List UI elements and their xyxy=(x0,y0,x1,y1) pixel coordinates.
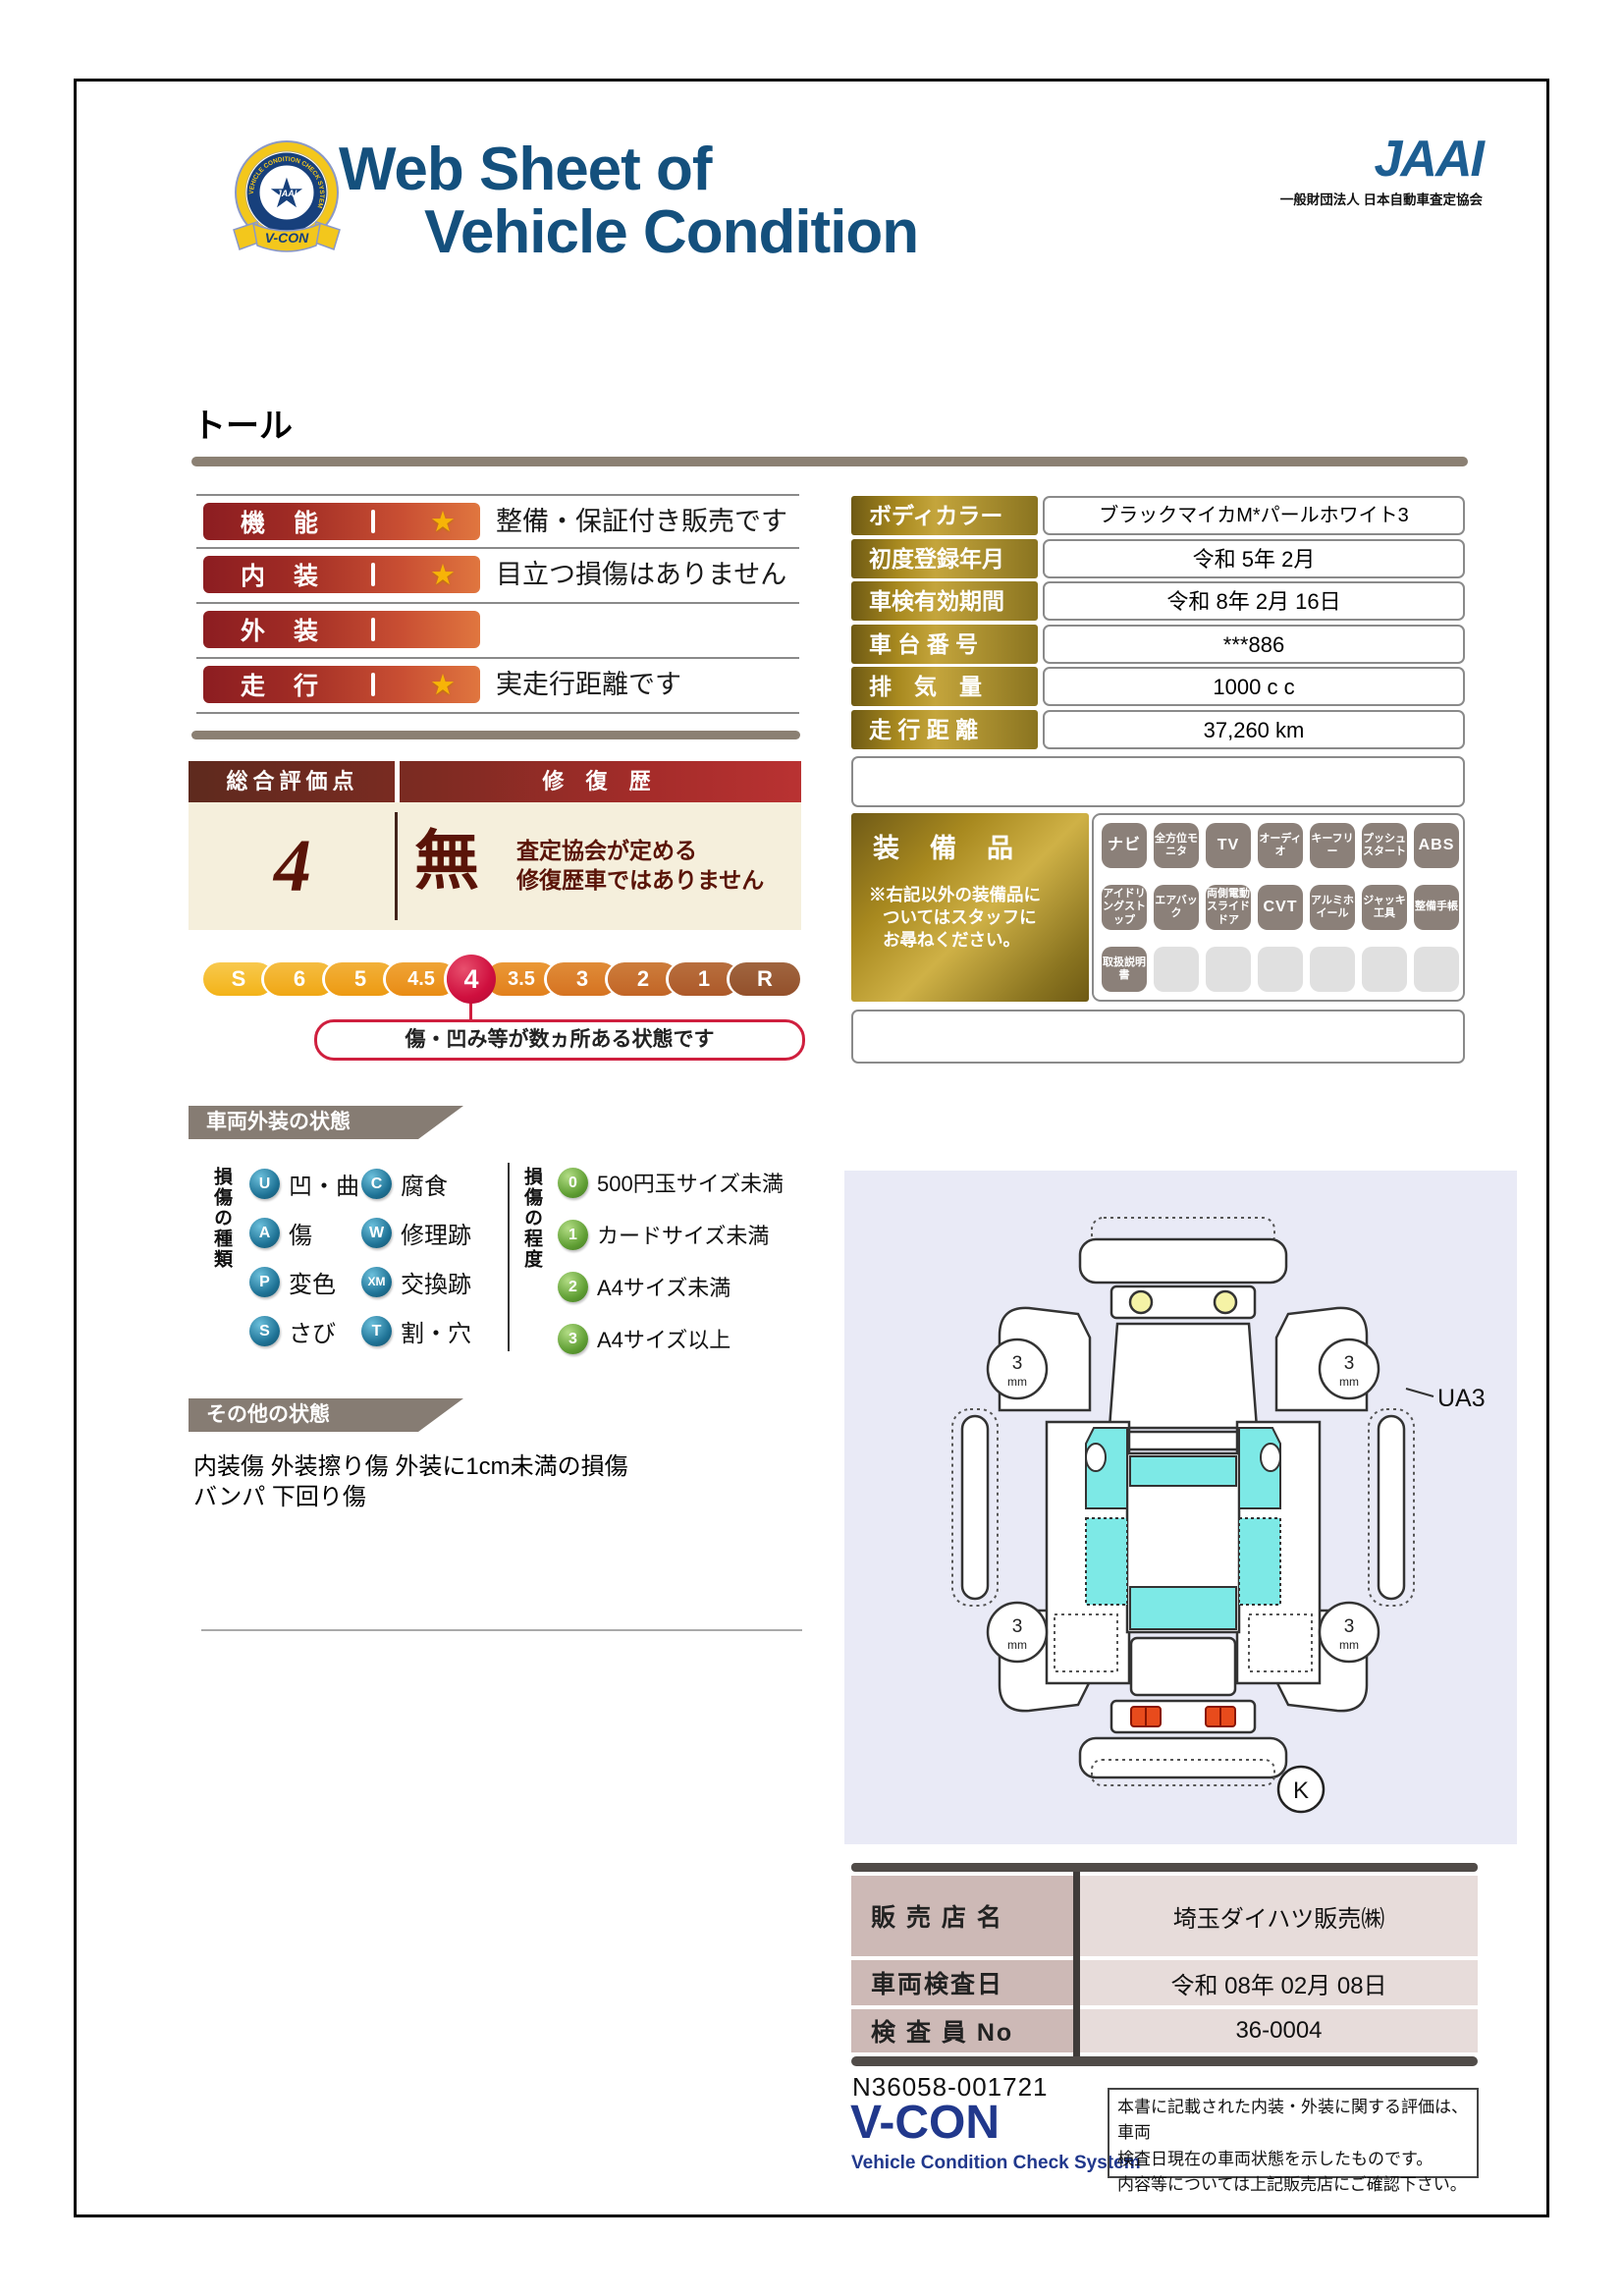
sheet-title-line2: Vehicle Condition xyxy=(424,202,918,263)
info-value-displacement: 1000 c c xyxy=(1043,667,1465,706)
section-exterior-title: 車両外装の状態 xyxy=(189,1106,463,1139)
degree-2-label: A4サイズ未満 xyxy=(597,1271,730,1302)
equipment-empty-slot xyxy=(1310,947,1355,992)
equipment-empty-slot xyxy=(1258,947,1303,992)
tire-fl-unit: mm xyxy=(1007,1375,1027,1389)
empty-note-box-2 xyxy=(851,1010,1465,1064)
dealer-value-inspection-date: 令和 08年 02月 08日 xyxy=(1080,1960,1478,2005)
vcon-badge-icon: VEHICLE CONDITION CHECK SYSTEM ★ JAAI V-… xyxy=(222,134,352,263)
damage-type-axis: 損傷の種類 xyxy=(208,1167,235,1324)
repair-note-line2: 修復歴車ではありません xyxy=(516,865,764,895)
dealer-value-shop: 埼玉ダイハツ販売㈱ xyxy=(1080,1876,1478,1956)
vehicle-name: トール xyxy=(192,399,293,447)
equipment-note-line2: ついてはスタッフに xyxy=(883,906,1037,929)
other-condition-line2: バンパ 下回り傷 xyxy=(193,1482,366,1512)
overall-score-header: 総合評価点 修 復 歴 xyxy=(189,761,801,802)
rating-divider xyxy=(371,510,375,533)
equipment-note-line3: お尋ねください。 xyxy=(883,929,1020,952)
badge-star-label: JAAI xyxy=(277,189,298,198)
legend-degree-3: 3 A4サイズ以上 xyxy=(558,1323,730,1354)
equipment-empty-slot xyxy=(1362,947,1407,992)
equipment-idling-stop: アイドリングストップ xyxy=(1102,885,1147,930)
repair-history-label: 修 復 歴 xyxy=(400,761,801,802)
equipment-airbag: エアバック xyxy=(1154,885,1199,930)
equipment-grid: ナビ 全方位モニタ TV オーディオ キーフリー プッシュスタート ABS アイ… xyxy=(1092,813,1465,1002)
legend-degree-0: 0 500円玉サイズ未満 xyxy=(558,1167,784,1198)
type-t-icon: T xyxy=(361,1316,392,1346)
disclaimer-line3: 内容等については上記販売店にご確認下さい。 xyxy=(1117,2175,1467,2194)
rating-separator xyxy=(196,712,799,714)
divider-bar-left xyxy=(191,731,800,739)
bubble-pointer xyxy=(469,1003,472,1020)
tire-rr-degree: 3 xyxy=(1344,1616,1355,1637)
legend-type-p: P 変色 xyxy=(249,1265,336,1299)
equipment-keyfree: キーフリー xyxy=(1310,823,1355,868)
section-other-title: その他の状態 xyxy=(189,1398,463,1432)
rating-bar-exterior: 外 装 xyxy=(203,611,480,648)
type-a-label: 傷 xyxy=(289,1216,312,1250)
equipment-panel: 装 備 品 ※右記以外の装備品に ついてはスタッフに お尋ねください。 xyxy=(851,813,1089,1002)
scale-pill-r: R xyxy=(730,962,800,996)
jaai-logo-block: JAAI 一般財団法人 日本自動車査定協会 xyxy=(1208,134,1483,208)
rating-bar-mileage: 走 行 ★ xyxy=(203,666,480,703)
vcon-footer-logo: V-CON xyxy=(850,2100,1000,2147)
rating-bar-function: 機 能 ★ xyxy=(203,503,480,540)
dealer-table-top-bar xyxy=(851,1863,1478,1872)
equipment-abs: ABS xyxy=(1414,823,1459,868)
type-w-label: 修理跡 xyxy=(401,1216,471,1250)
degree-0-icon: 0 xyxy=(558,1168,588,1198)
type-s-label: さび xyxy=(289,1314,336,1348)
rating-label: 走 行 xyxy=(241,667,320,702)
disclaimer-line2: 検査日現在の車両状態を示したものです。 xyxy=(1117,2150,1433,2168)
type-xm-icon: XM xyxy=(361,1267,392,1297)
degree-3-icon: 3 xyxy=(558,1324,588,1354)
star-icon: ★ xyxy=(425,558,460,592)
other-underline xyxy=(201,1629,802,1631)
rating-label: 外 装 xyxy=(241,612,320,647)
degree-2-icon: 2 xyxy=(558,1272,588,1302)
rating-desc-interior: 目立つ損傷はありません xyxy=(496,556,786,593)
equipment-empty-slot xyxy=(1206,947,1251,992)
info-value-bodycolor: ブラックマイカM*パールホワイト3 xyxy=(1043,496,1465,535)
jaai-subtitle: 一般財団法人 日本自動車査定協会 xyxy=(1208,189,1483,208)
legend-type-c: C 腐食 xyxy=(361,1167,448,1201)
body-divider xyxy=(395,812,398,920)
rating-separator xyxy=(196,547,799,549)
type-p-label: 変色 xyxy=(289,1265,336,1299)
info-value-mileage: 37,260 km xyxy=(1043,710,1465,749)
type-s-icon: S xyxy=(249,1316,280,1346)
type-c-label: 腐食 xyxy=(401,1167,448,1201)
type-c-icon: C xyxy=(361,1169,392,1199)
info-value-inspection-period: 令和 8年 2月 16日 xyxy=(1043,581,1465,621)
dealer-label-shop: 販 売 店 名 xyxy=(851,1876,1073,1956)
car-damage-diagram: 3 mm 3 mm 3 mm 3 mm UA3 K xyxy=(844,1171,1517,1844)
equipment-cvt: CVT xyxy=(1258,885,1303,930)
dealer-label-inspection-date: 車両検査日 xyxy=(851,1960,1073,2005)
info-value-chassis-number: ***886 xyxy=(1043,625,1465,664)
rating-separator xyxy=(196,602,799,604)
vcon-footer-subtitle: Vehicle Condition Check System xyxy=(851,2153,1141,2174)
info-label-displacement: 排 気 量 xyxy=(851,667,1038,706)
legend-type-t: T 割・穴 xyxy=(361,1314,471,1348)
rating-bar-interior: 内 装 ★ xyxy=(203,556,480,593)
panel-code-label: UA3 xyxy=(1437,1385,1486,1412)
legend-degree-2: 2 A4サイズ未満 xyxy=(558,1271,730,1302)
disclaimer-box: 本書に記載された内装・外装に関する評価は、車両 検査日現在の車両状態を示したもの… xyxy=(1108,2088,1479,2178)
star-icon: ★ xyxy=(425,668,460,702)
tire-fr-unit: mm xyxy=(1339,1375,1359,1389)
rating-desc-function: 整備・保証付き販売です xyxy=(496,503,787,540)
info-label-first-registration: 初度登録年月 xyxy=(851,539,1038,578)
info-label-inspection-period: 車検有効期間 xyxy=(851,581,1038,621)
equipment-around-monitor: 全方位モニタ xyxy=(1154,823,1199,868)
rating-divider xyxy=(371,563,375,586)
overall-score-body: 4 無 査定協会が定める 修復歴車ではありません xyxy=(189,802,801,930)
equipment-navi: ナビ xyxy=(1102,823,1147,868)
scale-pill-4-selected: 4 xyxy=(447,955,496,1004)
equipment-tv: TV xyxy=(1206,823,1251,868)
repair-note-line1: 査定協会が定める xyxy=(516,836,697,865)
damage-degree-axis: 損傷の程度 xyxy=(518,1167,545,1324)
type-u-label: 凹・曲 xyxy=(289,1167,359,1201)
dealer-table-divider xyxy=(1073,1872,1080,2056)
type-xm-label: 交換跡 xyxy=(401,1265,471,1299)
legend-type-u: U 凹・曲 xyxy=(249,1167,359,1201)
score-scale: S 6 5 4.5 4 3.5 3 2 1 R xyxy=(203,954,812,1005)
legend-divider xyxy=(508,1163,510,1351)
rating-separator xyxy=(196,657,799,659)
info-value-first-registration: 令和 5年 2月 xyxy=(1043,539,1465,578)
tire-rl-degree: 3 xyxy=(1012,1616,1023,1637)
info-label-chassis-number: 車 台 番 号 xyxy=(851,625,1038,664)
tire-fr-degree: 3 xyxy=(1344,1353,1355,1374)
type-a-icon: A xyxy=(249,1218,280,1248)
overall-score-value: 4 xyxy=(189,802,397,930)
empty-note-box-1 xyxy=(851,756,1465,807)
equipment-power-slide-door: 両側電動スライドドア xyxy=(1206,885,1251,930)
equipment-note-line1: ※右記以外の装備品に xyxy=(869,884,1041,906)
equipment-empty-slot xyxy=(1154,947,1199,992)
type-t-label: 割・穴 xyxy=(401,1314,471,1348)
sheet-title-line1: Web Sheet of xyxy=(339,139,712,200)
legend-type-xm: XM 交換跡 xyxy=(361,1265,471,1299)
degree-1-icon: 1 xyxy=(558,1220,588,1250)
degree-3-label: A4サイズ以上 xyxy=(597,1323,730,1354)
equipment-maintenance-book: 整備手帳 xyxy=(1414,885,1459,930)
type-w-icon: W xyxy=(361,1218,392,1248)
legend-type-a: A 傷 xyxy=(249,1216,312,1250)
dealer-value-inspector-no: 36-0004 xyxy=(1080,2009,1478,2052)
equipment-empty-slot xyxy=(1414,947,1459,992)
rating-label: 内 装 xyxy=(241,557,320,592)
degree-1-label: カードサイズ未満 xyxy=(597,1219,769,1250)
legend-degree-1: 1 カードサイズ未満 xyxy=(558,1219,769,1250)
rating-divider xyxy=(371,618,375,641)
type-p-icon: P xyxy=(249,1267,280,1297)
divider-bar-top xyxy=(191,457,1468,466)
tire-rr-unit: mm xyxy=(1339,1638,1359,1652)
disclaimer-line1: 本書に記載された内装・外装に関する評価は、車両 xyxy=(1117,2098,1468,2142)
equipment-alloy-wheel: アルミホイール xyxy=(1310,885,1355,930)
info-label-mileage: 走 行 距 離 xyxy=(851,710,1038,749)
inspection-mark: K xyxy=(1293,1777,1309,1804)
degree-0-label: 500円玉サイズ未満 xyxy=(597,1167,784,1198)
type-u-icon: U xyxy=(249,1169,280,1199)
tire-fl-degree: 3 xyxy=(1012,1353,1023,1374)
dealer-table-bottom-bar xyxy=(851,2056,1478,2066)
star-icon: ★ xyxy=(425,505,460,539)
score-bubble: 傷・凹み等が数ヵ所ある状態です xyxy=(314,1019,805,1061)
tire-rl-unit: mm xyxy=(1007,1638,1027,1652)
legend-type-s: S さび xyxy=(249,1314,336,1348)
overall-score-box: 総合評価点 修 復 歴 4 無 査定協会が定める 修復歴車ではありません xyxy=(189,761,801,930)
rating-label: 機 能 xyxy=(241,504,320,539)
equipment-title: 装 備 品 xyxy=(873,827,1015,865)
equipment-pushstart: プッシュスタート xyxy=(1362,823,1407,868)
rating-divider xyxy=(371,673,375,696)
equipment-owners-manual: 取扱説明書 xyxy=(1102,947,1147,992)
info-label-bodycolor: ボディカラー xyxy=(851,496,1038,535)
equipment-audio: オーディオ xyxy=(1258,823,1303,868)
other-condition-line1: 内装傷 外装擦り傷 外装に1cm未満の損傷 xyxy=(193,1451,628,1482)
jaai-logo: JAAI xyxy=(1208,134,1483,185)
rating-desc-mileage: 実走行距離です xyxy=(496,666,681,703)
rating-separator xyxy=(196,494,799,496)
equipment-jack-tools: ジャッキ工具 xyxy=(1362,885,1407,930)
legend-type-w: W 修理跡 xyxy=(361,1216,471,1250)
repair-history-value: 無 xyxy=(414,830,479,895)
overall-score-label: 総合評価点 xyxy=(189,761,397,802)
dealer-label-inspector-no: 検 査 員 No xyxy=(851,2009,1073,2052)
badge-vcon-label: V-CON xyxy=(265,230,309,246)
